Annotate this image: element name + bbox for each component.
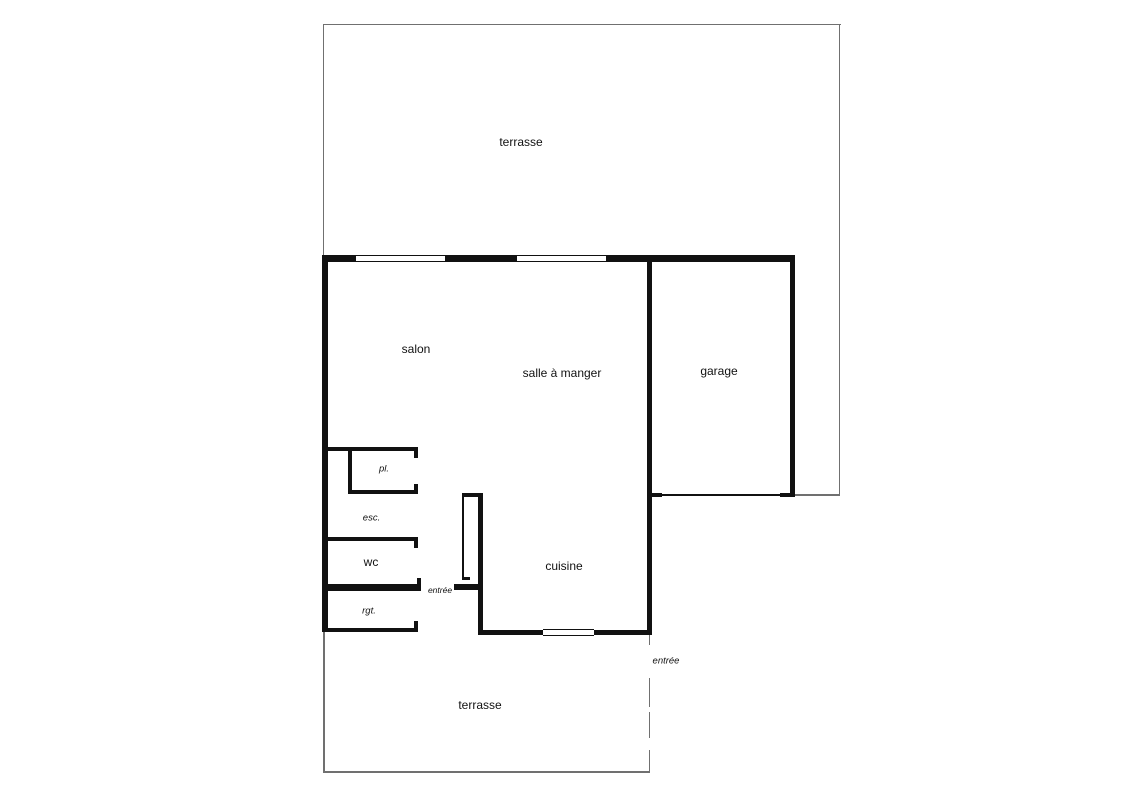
wall-garage-left: [647, 255, 652, 635]
terrace-bottom-edge-right-dash2: [649, 678, 650, 707]
terrace-top-edge-left: [323, 24, 324, 256]
wall-wc-top: [322, 537, 417, 541]
terrace-top-edge-bottom-right: [795, 494, 840, 495]
wall-top-2: [445, 255, 517, 262]
garage-door-line: [662, 494, 780, 496]
wall-kitchen-bottom-right: [594, 630, 651, 634]
room-label-terrace-bottom: terrasse: [458, 699, 501, 711]
room-label-garage: garage: [700, 365, 737, 377]
terrace-bottom-edge-right-dash4: [649, 750, 650, 773]
wall-closet-bottom-tick: [414, 484, 418, 494]
room-label-stairs: esc.: [363, 513, 380, 523]
wall-garage-right: [790, 255, 795, 497]
wall-wc-top-tick: [414, 537, 418, 549]
floor-plan: terrasse salon salle à manger garage cui…: [0, 0, 1131, 800]
wall-top-3-garage: [606, 255, 795, 262]
room-label-entry-inner: entrée: [428, 585, 452, 594]
window-dining: [517, 255, 606, 262]
wall-storage-bottom: [322, 628, 417, 632]
terrace-bottom-edge-left: [323, 632, 324, 773]
wall-closet-bottom: [348, 490, 417, 494]
wall-garage-bottom-right: [780, 493, 795, 498]
wall-kitchen-bottom-left: [478, 630, 543, 634]
wall-entry-threshold-tick: [417, 578, 421, 591]
window-kitchen: [543, 629, 594, 636]
entry-door-leaf: [462, 493, 463, 578]
wall-closet-left: [348, 447, 352, 495]
wall-kitchen-left: [478, 493, 482, 634]
room-label-kitchen: cuisine: [545, 560, 582, 572]
entry-door-bottom-tick: [462, 577, 470, 581]
wall-garage-bottom-left: [647, 493, 663, 498]
wall-entry-threshold: [322, 584, 420, 591]
terrace-bottom-edge-bottom: [323, 771, 650, 772]
wall-left-exterior: [322, 255, 327, 632]
wall-storage-bottom-tick: [414, 621, 418, 632]
terrace-bottom-edge-right-dash1: [649, 635, 650, 645]
window-salon: [356, 255, 445, 262]
room-label-wc: wc: [364, 556, 379, 568]
terrace-top-edge-right: [839, 24, 840, 496]
room-label-terrace-top: terrasse: [499, 136, 542, 148]
terrace-top-edge-top: [323, 24, 841, 25]
wall-closet-top: [322, 447, 417, 451]
room-label-storage: rgt.: [362, 606, 376, 616]
wall-entry-stub: [454, 584, 482, 591]
room-label-entry-outer: entrée: [653, 656, 680, 666]
wall-closet-top-tick: [414, 447, 418, 458]
room-label-salon: salon: [402, 343, 431, 355]
terrace-bottom-edge-right-dash3: [649, 712, 650, 738]
room-label-closet: pl.: [379, 464, 389, 474]
room-label-dining-room: salle à manger: [523, 367, 602, 379]
